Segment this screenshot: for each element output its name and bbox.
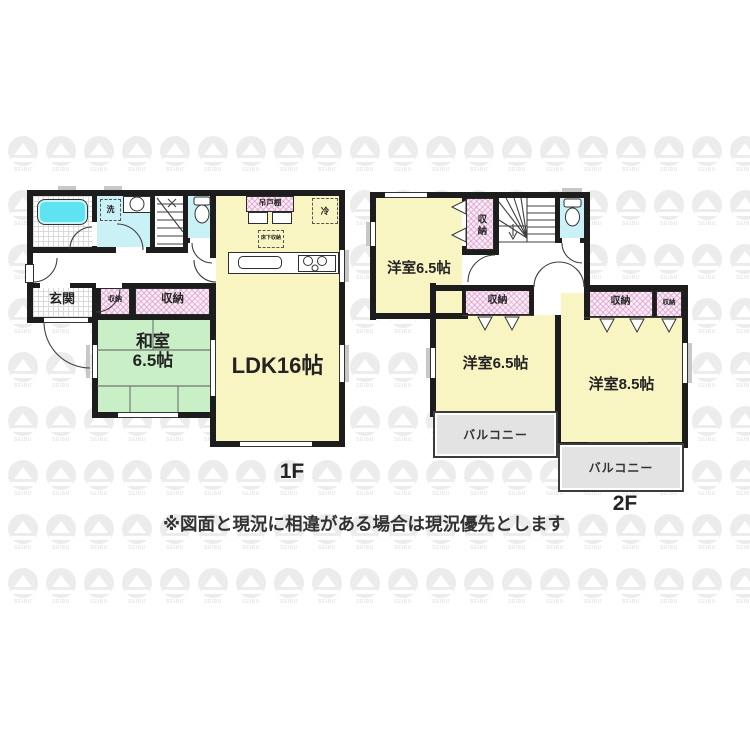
cupboard-label: 吊戸棚 [246,199,294,207]
watermark-logo-icon: SEIBU [614,568,648,614]
closet-label-2f-big: 収納 [588,296,653,307]
watermark-logo-icon: SEIBU [386,406,420,452]
washing-machine-label: 洗 [107,206,115,214]
underfloor-storage-label: 床下収納 [261,236,281,241]
watermark-logo-icon: SEIBU [652,244,686,290]
watermark-logo-icon: SEIBU [348,136,382,182]
watermark-logo-icon: SEIBU [348,568,382,614]
balcony-b-label: バルコニー [589,459,654,476]
watermark-logo-icon: SEIBU [614,136,648,182]
floor-label-2f: 2F [595,492,655,516]
watermark-logo-icon: SEIBU [82,136,116,182]
watermark-logo-icon: SEIBU [728,298,750,344]
watermark-logo-icon: SEIBU [196,136,230,182]
watermark-logo-icon: SEIBU [462,568,496,614]
watermark-logo-icon: SEIBU [272,136,306,182]
watermark-logo-icon: SEIBU [728,136,750,182]
watermark-logo-icon: SEIBU [158,460,192,506]
balcony-a-label: バルコニー [463,426,528,443]
watermark-logo-icon: SEIBU [6,352,40,398]
room-label-bedroom-c: 洋室8.5帖 [561,377,682,394]
watermark-logo-icon: SEIBU [728,352,750,398]
closet-label-1f-small: 収納 [100,296,130,304]
watermark-logo-icon: SEIBU [424,568,458,614]
watermark-logo-icon: SEIBU [6,514,40,560]
watermark-logo-icon: SEIBU [234,568,268,614]
floor-label-1f: 1F [262,460,322,484]
watermark-logo-icon: SEIBU [500,568,534,614]
underfloor-storage-icon: 床下収納 [258,230,284,248]
closet-label-2f-mid: 収納 [465,295,530,306]
watermark-logo-icon: SEIBU [6,568,40,614]
watermark-logo-icon: SEIBU [614,244,648,290]
watermark-logo-icon: SEIBU [82,514,116,560]
shoe-cabinet-icon [25,264,34,283]
washbasin-counter-icon [123,196,151,213]
watermark-logo-icon: SEIBU [538,136,572,182]
watermark-logo-icon: SEIBU [386,568,420,614]
watermark-logo-icon: SEIBU [310,136,344,182]
watermark-logo-icon: SEIBU [500,460,534,506]
floorplan-page: SEIBUSEIBUSEIBUSEIBUSEIBUSEIBUSEIBUSEIBU… [0,0,750,750]
watermark-logo-icon: SEIBU [576,514,610,560]
cupboard-door-icon [272,212,292,224]
watermark-logo-icon: SEIBU [348,352,382,398]
watermark-logo-icon: SEIBU [196,568,230,614]
watermark-logo-icon: SEIBU [652,514,686,560]
watermark-logo-icon: SEIBU [728,244,750,290]
watermark-logo-icon: SEIBU [690,568,724,614]
closet-label-2f-small: 収納 [656,299,682,306]
watermark-logo-icon: SEIBU [462,460,496,506]
watermark-logo-icon: SEIBU [614,190,648,236]
watermark-logo-icon: SEIBU [690,190,724,236]
watermark-logo-icon: SEIBU [652,568,686,614]
watermark-logo-icon: SEIBU [44,514,78,560]
bathtub-icon [37,199,88,225]
room-label-genkan: 玄関 [36,292,88,307]
balcony-a: バルコニー [433,411,558,458]
watermark-logo-icon: SEIBU [728,514,750,560]
watermark-logo-icon: SEIBU [652,190,686,236]
watermark-logo-icon: SEIBU [538,568,572,614]
watermark-logo-icon: SEIBU [348,406,382,452]
watermark-logo-icon: SEIBU [690,406,724,452]
room-label-ldk: LDK16帖 [216,354,339,379]
watermark-logo-icon: SEIBU [44,352,78,398]
balcony-b: バルコニー [558,443,684,492]
watermark-logo-icon: SEIBU [576,568,610,614]
cupboard-door-icon [248,212,268,224]
closet-label-1f-large: 収納 [135,293,210,306]
watermark-logo-icon: SEIBU [690,298,724,344]
watermark-logo-icon: SEIBU [386,352,420,398]
watermark-logo-icon: SEIBU [690,352,724,398]
watermark-logo-icon: SEIBU [234,136,268,182]
watermark-logo-icon: SEIBU [158,568,192,614]
refrigerator-label: 冷 [321,207,330,216]
watermark-logo-icon: SEIBU [196,460,230,506]
watermark-logo-icon: SEIBU [44,406,78,452]
kitchen-sink-icon [238,256,282,269]
watermark-logo-icon: SEIBU [500,136,534,182]
watermark-logo-icon: SEIBU [462,136,496,182]
watermark-logo-icon: SEIBU [120,568,154,614]
watermark-logo-icon: SEIBU [386,460,420,506]
room-label-washitsu: 和室 6.5帖 [103,332,203,370]
room-label-bedroom-b: 洋室6.5帖 [436,356,555,373]
watermark-logo-icon: SEIBU [728,190,750,236]
watermark-logo-icon: SEIBU [6,406,40,452]
watermark-logo-icon: SEIBU [272,568,306,614]
watermark-logo-icon: SEIBU [120,460,154,506]
watermark-logo-icon: SEIBU [386,136,420,182]
watermark-logo-icon: SEIBU [728,568,750,614]
watermark-logo-icon: SEIBU [44,568,78,614]
refrigerator-icon: 冷 [312,198,338,224]
watermark-logo-icon: SEIBU [690,514,724,560]
watermark-logo-icon: SEIBU [424,460,458,506]
watermark-logo-icon: SEIBU [82,568,116,614]
watermark-logo-icon: SEIBU [44,460,78,506]
washing-machine-icon: 洗 [100,199,121,221]
watermark-logo-icon: SEIBU [576,136,610,182]
watermark-logo-icon: SEIBU [6,460,40,506]
watermark-logo-icon: SEIBU [158,136,192,182]
watermark-logo-icon: SEIBU [614,514,648,560]
watermark-logo-icon: SEIBU [310,568,344,614]
watermark-logo-icon: SEIBU [120,514,154,560]
stove-icon [298,255,336,272]
watermark-logo-icon: SEIBU [424,136,458,182]
watermark-logo-icon: SEIBU [348,460,382,506]
watermark-logo-icon: SEIBU [690,136,724,182]
watermark-logo-icon: SEIBU [690,460,724,506]
watermark-logo-icon: SEIBU [652,136,686,182]
room-label-bedroom-a: 洋室6.5帖 [376,261,462,277]
watermark-logo-icon: SEIBU [728,460,750,506]
watermark-logo-icon: SEIBU [44,136,78,182]
disclaimer-text: ※図面と現況に相違がある場合は現況優先とします [163,515,565,535]
watermark-logo-icon: SEIBU [120,136,154,182]
watermark-logo-icon: SEIBU [6,136,40,182]
closet-label-2f-vertical: 収納 [466,203,494,247]
watermark-logo-icon: SEIBU [728,406,750,452]
watermark-logo-icon: SEIBU [690,244,724,290]
watermark-logo-icon: SEIBU [82,460,116,506]
